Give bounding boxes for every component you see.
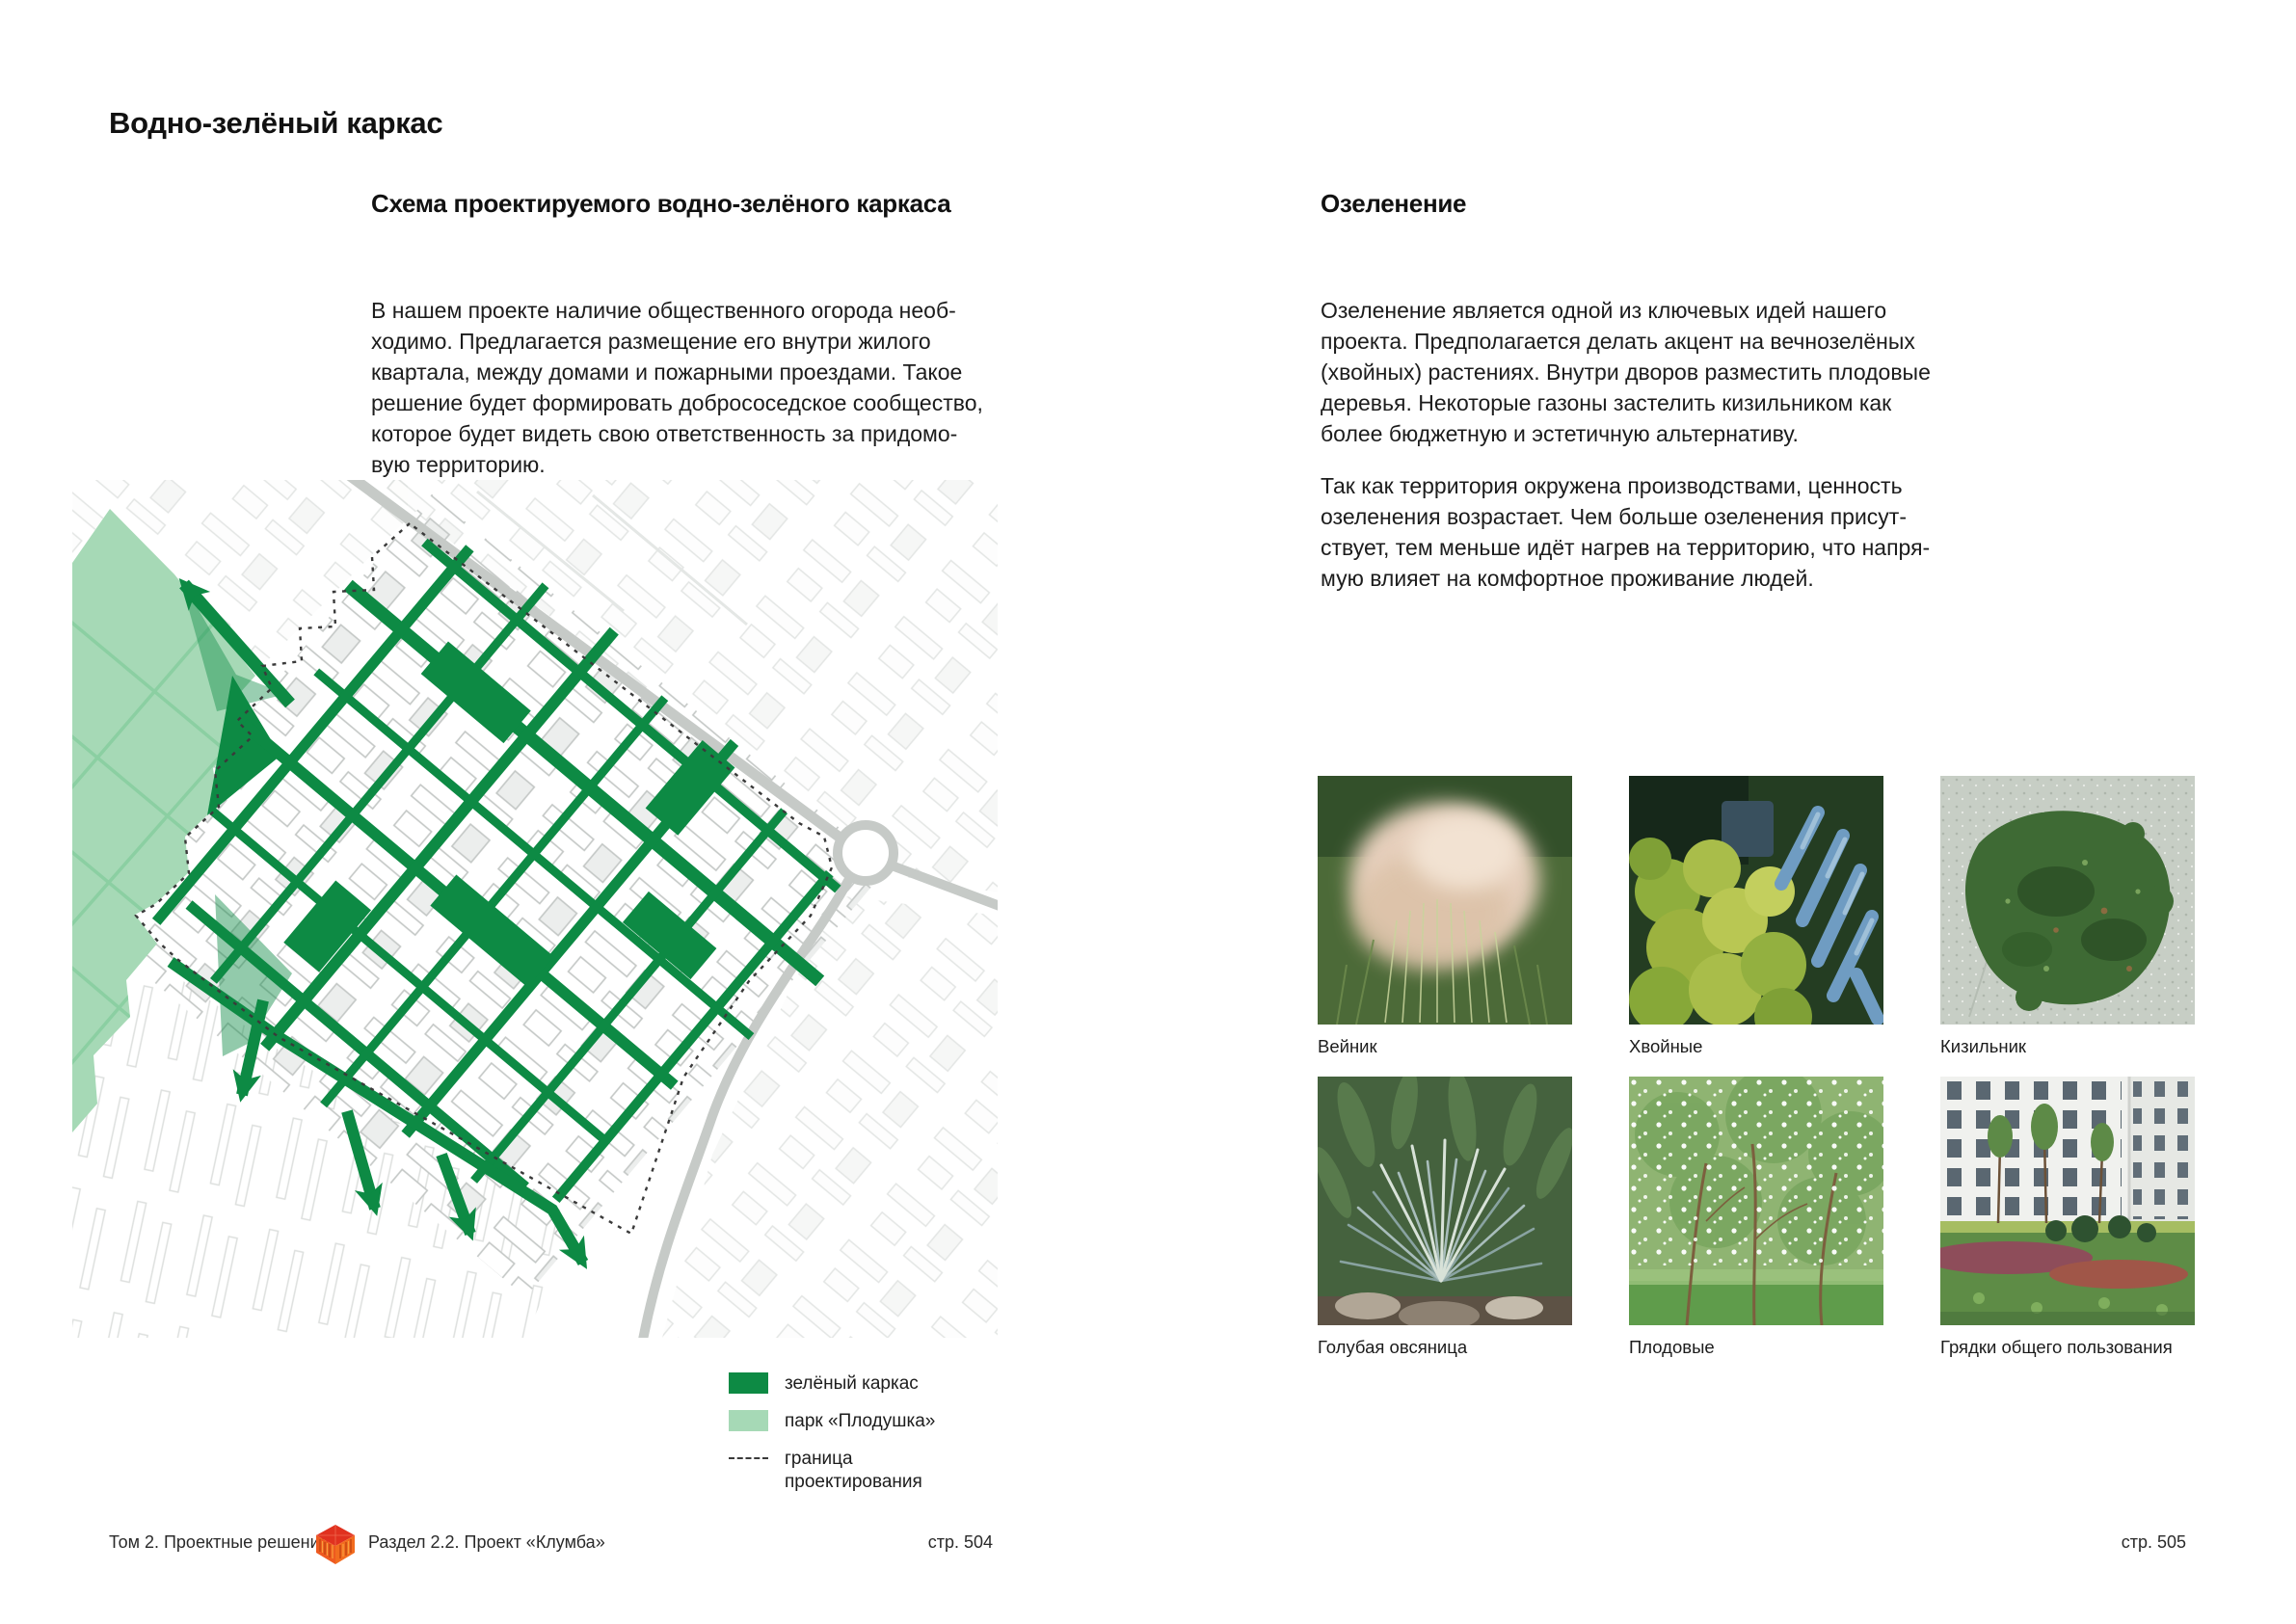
legend-item-green-framework: зелёный каркас (729, 1372, 919, 1396)
photo-kizilnik-image (1940, 776, 2195, 1025)
scheme-paragraph: В нашем проекте наличие общественного ог… (371, 295, 1027, 480)
plants-photo-grid: Вейник (1318, 776, 2195, 1358)
landscaping-paragraph-1: Озеленение является одной из ключевых ид… (1321, 295, 1976, 449)
photo-khvoynye-image (1629, 776, 1883, 1025)
page-number-left: стр. 504 (868, 1532, 993, 1553)
photo-caption: Кизильник (1940, 1036, 2195, 1057)
legend-item-boundary: граница проектирования (729, 1448, 922, 1494)
legend-label: зелёный каркас (785, 1372, 919, 1396)
green-framework-map (72, 480, 998, 1338)
photo-gryadki: Грядки общего пользования (1940, 1077, 2195, 1358)
photo-khvoynye: Хвойные (1629, 776, 1883, 1057)
photo-caption: Плодовые (1629, 1337, 1883, 1358)
landscaping-paragraph-2: Так как территория окружена производства… (1321, 470, 1976, 594)
photo-ovsyanitsa: Голубая овсяница (1318, 1077, 1572, 1358)
photo-veynik: Вейник (1318, 776, 1572, 1057)
photo-gryadki-image (1940, 1077, 2195, 1325)
green-framework-map-drawing (72, 480, 998, 1338)
photo-ovsyanitsa-image (1318, 1077, 1572, 1325)
legend-label: граница проектирования (785, 1448, 922, 1494)
photo-caption: Хвойные (1629, 1036, 1883, 1057)
photo-plodovye-image (1629, 1077, 1883, 1325)
green-framework-swatch (729, 1372, 768, 1394)
photo-caption: Вейник (1318, 1036, 1572, 1057)
footer-volume: Том 2. Проектные решения (109, 1532, 329, 1553)
photo-kizilnik: Кизильник (1940, 776, 2195, 1057)
photo-veynik-image (1318, 776, 1572, 1025)
klumba-logo-icon (314, 1523, 357, 1565)
scheme-heading: Схема проектируемого водно-зелёного карк… (371, 189, 1027, 219)
footer-section: Раздел 2.2. Проект «Клумба» (368, 1532, 605, 1553)
boundary-dash-swatch (729, 1457, 768, 1459)
legend-label: парк «Плодушка» (785, 1410, 935, 1433)
page-number-right: стр. 505 (2053, 1532, 2186, 1553)
landscaping-heading: Озеленение (1321, 189, 1976, 219)
document-page: Водно-зелёный каркас Схема проектируемог… (0, 0, 2296, 1624)
park-swatch (729, 1410, 768, 1431)
photo-plodovye: Плодовые (1629, 1077, 1883, 1358)
photo-caption: Голубая овсяница (1318, 1337, 1572, 1358)
page-title: Водно-зелёный каркас (109, 106, 442, 141)
photo-caption: Грядки общего пользования (1940, 1337, 2195, 1358)
legend-item-park: парк «Плодушка» (729, 1410, 935, 1433)
